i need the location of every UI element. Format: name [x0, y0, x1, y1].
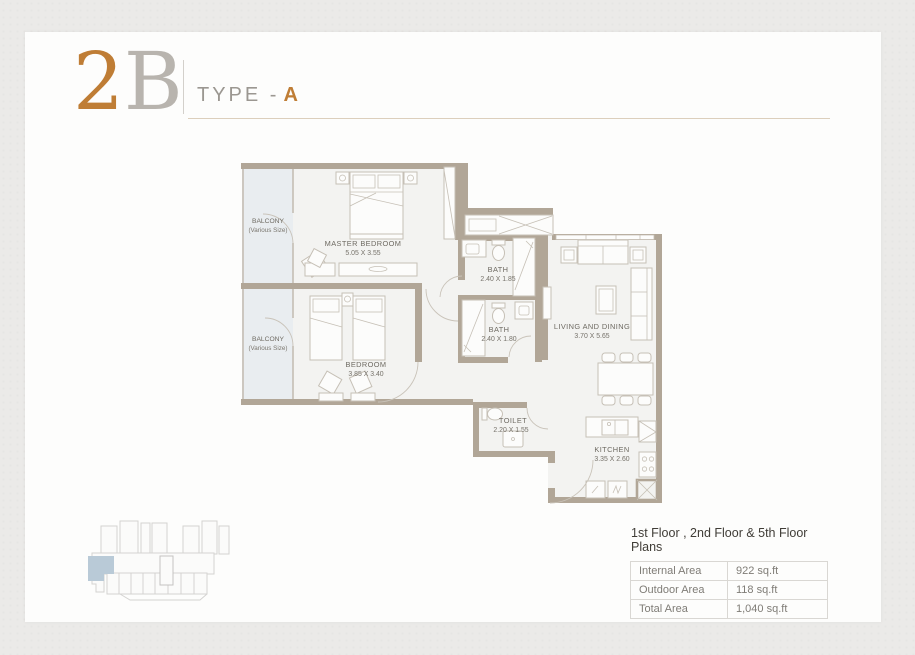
unit-letter: B — [124, 44, 183, 120]
unit-title: 2 B — [73, 44, 183, 120]
area-table: Internal Area 922 sq.ft Outdoor Area 118… — [630, 561, 828, 619]
svg-text:KITCHEN: KITCHEN — [594, 445, 629, 454]
svg-text:2.40 X 1.85: 2.40 X 1.85 — [480, 276, 515, 283]
area-label: Internal Area — [631, 562, 728, 581]
svg-text:BALCONY: BALCONY — [252, 336, 285, 343]
svg-text:3.35 X 2.60: 3.35 X 2.60 — [594, 456, 629, 463]
table-row: Outdoor Area 118 sq.ft — [631, 581, 828, 600]
floor-plan: BALCONY (Various Size) MASTER BEDROOM 5.… — [238, 158, 668, 510]
svg-text:BATH: BATH — [488, 265, 509, 274]
page-background: { "title": { "big_first": "2", "big_seco… — [0, 0, 915, 655]
svg-text:2.40 X 1.80: 2.40 X 1.80 — [481, 336, 516, 343]
svg-text:(Various Size): (Various Size) — [248, 227, 287, 234]
svg-text:LIVING AND DINING: LIVING AND DINING — [554, 322, 630, 331]
title-rule — [188, 118, 830, 119]
svg-text:3.85 X 3.40: 3.85 X 3.40 — [348, 371, 383, 378]
svg-text:3.70 X 5.65: 3.70 X 5.65 — [574, 333, 609, 340]
living-windows — [556, 235, 654, 240]
building-key-plan — [82, 514, 232, 616]
area-value: 1,040 sq.ft — [728, 600, 828, 619]
svg-text:2.20 X 1.55: 2.20 X 1.55 — [493, 427, 528, 434]
svg-text:TOILET: TOILET — [499, 416, 527, 425]
svg-text:5.05 X 3.55: 5.05 X 3.55 — [345, 250, 380, 257]
title-divider — [183, 60, 184, 114]
svg-text:(Various Size): (Various Size) — [248, 345, 287, 352]
area-label: Outdoor Area — [631, 581, 728, 600]
unit-number: 2 — [73, 44, 124, 120]
area-value: 118 sq.ft — [728, 581, 828, 600]
unit-type: TYPE -A — [197, 84, 301, 107]
table-row: Total Area 1,040 sq.ft — [631, 600, 828, 619]
plans-title: 1st Floor , 2nd Floor & 5th Floor Plans — [631, 526, 830, 554]
table-row: Internal Area 922 sq.ft — [631, 562, 828, 581]
area-value: 922 sq.ft — [728, 562, 828, 581]
svg-text:BATH: BATH — [489, 325, 510, 334]
svg-text:BALCONY: BALCONY — [252, 218, 285, 225]
type-label: TYPE - — [197, 84, 279, 106]
area-summary: 1st Floor , 2nd Floor & 5th Floor Plans … — [630, 526, 830, 619]
type-value: A — [283, 84, 300, 106]
svg-text:BEDROOM: BEDROOM — [346, 360, 387, 369]
svg-text:MASTER BEDROOM: MASTER BEDROOM — [325, 239, 402, 248]
page-card: 2 B TYPE -A — [25, 32, 881, 622]
area-label: Total Area — [631, 600, 728, 619]
closet — [465, 215, 553, 235]
